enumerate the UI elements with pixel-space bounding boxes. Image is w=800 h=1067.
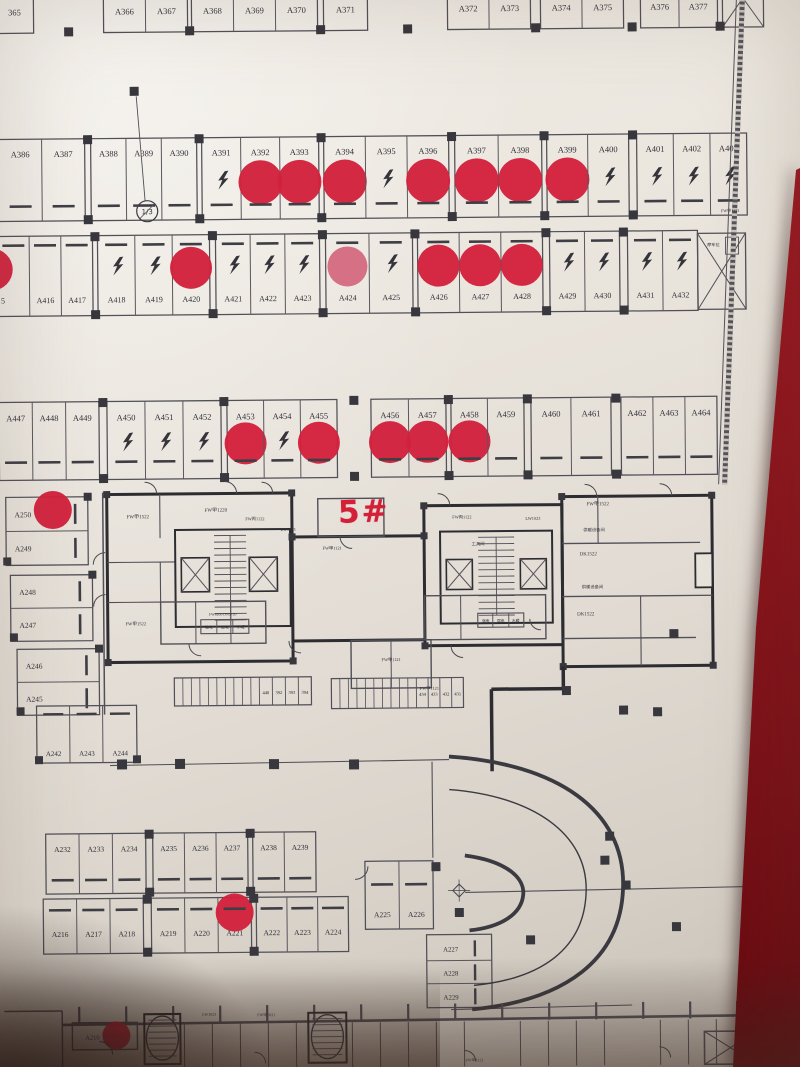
parking-stall: A449 [71,413,93,464]
locker-number: 392 [276,690,283,695]
stall-group: A386A387 [0,139,85,222]
plan-line [264,400,265,478]
stall-label: A454 [273,411,293,421]
stall-label: A223 [294,928,311,937]
floorplan-svg: 365A366A367A368A369A370A371A372A373A374A… [0,0,800,1067]
column-marker [290,657,297,664]
stall-label: A416 [37,296,55,305]
stall-group: A376A377 [640,0,718,28]
plan-line [491,689,492,771]
stall-label: A459 [496,409,515,419]
stall-label: A395 [377,146,396,156]
wheel-stop [82,909,104,912]
door-arc [262,482,273,493]
plan-line [135,235,136,315]
column-marker [455,908,464,917]
stall-label: A226 [408,910,425,919]
plan-line [641,596,642,666]
sold-red-dot [238,160,282,204]
stall-label: A421 [224,294,242,303]
stall-group: A238A239 [253,832,317,893]
lightning-icon [297,255,312,274]
parking-stall: A234 [118,844,140,881]
stall-label: A245 [26,695,43,704]
column-marker [421,532,428,539]
column-marker [523,394,532,403]
wheel-stop [380,241,402,244]
wheel-stop [5,461,27,464]
stall-group: A219A220A221 [151,893,254,953]
door-arc [340,536,352,548]
stall-label: A455 [309,411,328,421]
plan-line [275,0,276,31]
plan-line [42,139,43,221]
locker-number: 448 [263,690,271,695]
stall-group: A426A427A428 [417,232,543,313]
stall-label: A391 [212,147,231,157]
sold-red-dot [406,159,450,203]
stall-label: A393 [290,147,309,157]
parking-stall: A424 [327,241,368,302]
column-marker [195,214,204,223]
column-marker [98,398,107,407]
stall-label: A458 [460,409,479,419]
plan-line [662,231,663,311]
parking-stall: A390 [168,148,191,207]
plan-rect [425,595,546,640]
plan-line [285,234,286,314]
column-marker [64,27,73,36]
room-label: LW1023 [280,527,295,532]
room-label: LW1023 [525,516,540,521]
room-label: FW8100 DN9720 [209,612,236,616]
parking-stall: A367 [157,6,176,16]
column-marker [562,686,571,695]
lightning-icon [121,432,136,451]
stall-label: A432 [672,290,690,299]
lightning-icon [159,432,174,451]
stall-label: A247 [19,621,36,630]
stall-group: A453A454A455 [224,400,340,479]
sold-red-dot [298,422,340,464]
wheel-stop [474,988,477,1004]
parking-stall: A422 [256,242,279,303]
column-marker [246,829,255,838]
column-marker [669,629,678,638]
parking-stall: A453 [224,411,266,464]
wheel-stop [322,907,344,910]
column-marker [541,228,550,237]
column-marker [317,213,326,222]
plan-line [710,133,711,215]
column-marker [448,212,457,221]
stall-label: 365 [8,7,21,17]
parking-stall: A452 [191,412,213,463]
column-marker [288,489,295,496]
stall-label: A210 [85,1035,100,1042]
lightning-icon [640,252,655,271]
column-marker [143,895,152,904]
parking-stall: A398 [498,145,543,204]
door-arc [530,619,541,630]
column-marker [219,397,228,406]
stall-label: A376 [650,2,669,12]
parking-stall: A217 [82,909,104,939]
plan-line [491,689,563,690]
lightning-icon [650,167,665,186]
plan-line [61,236,62,316]
sold-red-dot [498,158,542,202]
parking-stall: A418 [105,243,128,304]
plan-line [459,232,460,312]
stall-label: A429 [559,291,577,300]
sold-red-dot [448,420,490,462]
parking-stall: A394 [322,146,367,205]
plan-line [399,861,400,929]
stall-group: A421A422A423 [215,234,320,315]
parking-stall: 365 [8,7,21,17]
plan-line [4,1011,62,1012]
plan-line [571,398,572,476]
lightning-icon [277,431,292,450]
parking-stall: A368 [203,6,222,16]
stall-label: A216 [52,930,69,939]
wheel-stop [405,883,427,886]
column-marker [542,306,551,315]
parking-stall: A396 [406,146,451,205]
plan-line [103,493,105,715]
column-marker [629,210,638,219]
locker-number: 433 [431,692,439,697]
stall-label: A248 [19,588,36,597]
stall-label: A394 [335,146,355,156]
column-marker [185,26,194,35]
plan-line [17,682,99,683]
wheel-stop [53,205,75,208]
stall-label: A218 [118,929,135,938]
stall-label: A244 [112,749,128,757]
room-label: FW甲1121 [466,1057,484,1062]
wheel-stop [43,713,63,716]
parking-stall: A374 [552,2,572,12]
stall-label: A217 [85,930,102,939]
plan-line [588,134,589,216]
stall-group: A418A419A420 [97,235,212,316]
lightning-icon [216,171,231,190]
parking-stall: A235 [158,844,180,881]
stall-label: A390 [170,148,189,158]
parking-stall: A429 [556,239,579,300]
stall-group: A368A369A370 [191,0,318,32]
wheel-stop [235,459,257,462]
stall-label: A449 [73,413,92,423]
wheel-stop [626,456,648,459]
column-marker [208,231,217,240]
room-label: LW1023 [202,1012,216,1017]
stall-label: A246 [26,662,43,671]
sold-red-dot [102,1021,130,1049]
parking-stall: A391 [210,147,233,206]
wheel-stop [2,244,24,247]
wheel-stop [291,242,313,245]
column-marker [600,856,609,865]
plan-path [449,788,587,985]
parking-stall: A232 [51,845,73,882]
parking-stall: A400 [597,144,620,203]
stall-label: A232 [54,845,71,854]
lightning-icon [597,252,612,271]
column-marker [523,470,532,479]
stall-label: A453 [236,411,255,421]
column-marker [91,310,100,319]
stall-label: A401 [646,144,665,154]
stall-group: A372A373 [447,0,531,30]
reference-point-icon [448,879,470,901]
stall-label: 5 [1,296,5,305]
parking-stall: A460 [540,409,562,460]
column-marker [672,922,681,931]
plan-line [427,983,492,984]
wheel-stop [98,204,120,207]
locker-number: 394 [302,690,310,695]
column-marker [130,87,139,96]
stall-label: A373 [500,3,519,13]
wheel-stop [669,238,691,241]
column-marker [421,642,428,649]
wheel-stop [580,456,602,459]
plan-rect [695,553,712,587]
room-label: 供暖设备间 [583,526,605,533]
stall-label: A427 [472,292,490,301]
locker-number: 393 [289,690,297,695]
column-marker [269,759,279,769]
plan-rect [43,898,143,954]
stall-label: A425 [382,293,400,302]
stall-label: A460 [542,409,561,419]
sold-red-dot [277,160,321,204]
parking-stall: A451 [153,412,175,463]
parking-stall: A376 [650,2,669,12]
column-marker [17,707,25,715]
wheel-stop [34,244,56,247]
column-marker [403,24,412,33]
column-marker [349,396,358,405]
parking-stall: A425 [380,241,403,302]
utility-label: 水暖 [237,624,245,629]
plan-line [487,398,488,476]
lightning-icon [603,167,618,186]
wheel-stop [74,504,77,524]
parking-stall: A237 [221,843,243,880]
column-marker [250,947,259,956]
stall-label: A374 [552,2,572,12]
door-arc [451,645,463,657]
wheel-stop [417,458,439,461]
column-marker [622,881,631,890]
column-marker [84,215,93,224]
plan-line [489,0,490,29]
sold-red-dot [369,421,411,463]
parking-stall: A417 [66,244,89,305]
plan-line [107,562,175,563]
wheel-stop [556,239,578,242]
wheel-stop [511,240,533,243]
stall-label: A448 [40,413,59,423]
lightning-icon [686,167,701,186]
parking-stall: A456 [369,410,411,463]
stall-label: A235 [160,844,177,853]
parking-stall: 5 [0,244,25,305]
parking-stall: A387 [52,149,75,208]
stall-label: A236 [192,844,209,853]
wheel-stop [221,877,243,880]
stall-label: A456 [380,410,399,420]
sold-red-dot [459,244,501,286]
utility-label: 弱电 [221,624,229,629]
column-marker [431,862,440,871]
parking-stall: A233 [85,845,107,882]
stall-label: A402 [682,143,701,153]
plan-line [183,401,184,479]
parking-stall: A220 [190,908,212,938]
parking-stall: A459 [495,409,517,460]
column-marker [558,493,565,500]
parking-stall: A388 [97,148,120,207]
lightning-icon [675,252,690,271]
parking-stall: A401 [644,144,667,203]
locker-number: 434 [419,692,427,697]
plan-line [369,233,370,313]
stall-label: A419 [145,295,163,304]
parking-stall: A464 [690,407,712,458]
parking-stall: A392 [238,147,283,206]
stall-label: A399 [558,144,577,154]
column-marker [526,935,535,944]
parking-stall: A225 [371,883,393,919]
column-marker [318,230,327,239]
parking-stall: A463 [658,408,680,459]
stall-label: A368 [203,6,222,16]
locker-number: 432 [443,692,450,697]
column-marker [540,131,549,140]
column-marker [249,894,258,903]
column-marker [628,130,637,139]
stall-label: A388 [99,148,118,158]
parking-stall: A216 [49,909,71,939]
parking-stall: A402 [681,143,704,202]
wheel-stop [118,878,140,881]
column-marker [220,473,229,482]
column-marker [531,23,540,32]
lightning-icon [148,256,163,275]
stall-label: A428 [513,292,531,301]
column-marker [619,706,628,715]
stall-group: A397A398 [454,135,542,218]
wheel-stop [52,879,74,882]
wheel-stop [261,907,283,910]
parking-stall: A447 [5,413,27,464]
stall-label: A222 [263,928,280,937]
wheel-stop [158,878,180,881]
utility-label: 水暖 [512,618,520,623]
stall-label: A227 [443,947,459,954]
wheel-stop [289,877,311,880]
wheel-stop [466,201,488,204]
room-label: FW甲1522 [125,621,146,627]
stall-label: A462 [627,408,646,418]
wheel-stop [681,199,703,202]
stall-label: A398 [510,145,529,155]
wheel-stop [598,200,620,203]
lightning-icon [197,432,212,451]
wheel-stop [116,908,138,911]
stall-label: A397 [467,145,486,155]
sold-red-dot [501,244,543,286]
stall-group: A431A432 [627,230,698,311]
utility-label: 弱电 [497,618,505,623]
stall-label: A229 [444,995,460,1002]
stall-group: A399A400 [545,134,629,217]
sold-red-dot [417,244,459,286]
column-marker [209,309,218,318]
door-arc [225,481,237,493]
parking-stall: A432 [669,238,692,299]
wheel-stop [289,203,311,206]
wheel-stop [191,460,213,463]
door-arc [585,484,597,496]
column-marker [612,470,621,479]
plan-line [32,402,33,480]
plan-line [233,0,234,31]
stall-group: A394A395A396 [322,136,450,219]
wheel-stop [157,908,179,911]
parking-stall: A375 [593,2,612,12]
sold-red-dot [34,491,72,529]
wheel-stop [644,200,666,203]
plan-line [584,231,585,311]
building-label: 5# [337,493,390,531]
column-marker [10,633,18,641]
column-marker [195,134,204,143]
wheel-stop [180,243,202,246]
wheel-stop [224,907,246,910]
stall-label: A426 [430,293,448,302]
stall-group: A458A459 [448,398,524,477]
column-marker [316,25,325,34]
room-label: DK1522 [577,612,595,617]
parking-stall: A431 [634,239,657,300]
plan-line [284,832,285,892]
wheel-stop [78,581,81,601]
plan-content: 365A366A367A368A369A370A371A372A373A374A… [0,0,800,1067]
parking-stall: A450 [115,412,137,463]
wheel-stop [85,655,88,675]
plan-line [685,397,686,475]
column-marker [133,755,141,763]
column-marker [605,832,614,841]
lightning-icon [262,255,277,274]
stall-group: A374A375 [540,0,624,29]
plan-line [432,762,433,858]
plan-line [427,960,492,961]
stall-label: A422 [259,294,277,303]
parking-stall: A426 [417,240,460,301]
lightning-icon [381,169,396,188]
wheel-stop [308,459,330,462]
wheel-stop [334,202,356,205]
plan-rect [144,1014,180,1064]
stall-label: A375 [593,2,612,12]
